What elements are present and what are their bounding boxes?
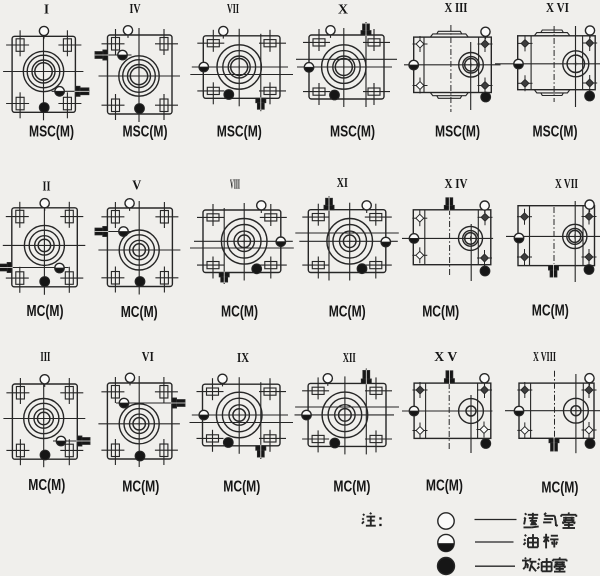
svg-text:X: X xyxy=(338,3,348,18)
svg-text:MC(M): MC(M) xyxy=(422,304,459,321)
svg-text:MC(M): MC(M) xyxy=(221,304,258,321)
svg-text:IX: IX xyxy=(237,351,249,366)
svg-text:VI: VI xyxy=(142,350,154,365)
svg-text:III: III xyxy=(40,350,50,365)
svg-text:MC(M): MC(M) xyxy=(122,479,159,496)
svg-text:MC(M): MC(M) xyxy=(28,477,65,494)
svg-text:V: V xyxy=(132,179,141,194)
svg-text:MSC(M): MSC(M) xyxy=(29,124,74,141)
svg-text:VII: VII xyxy=(227,2,239,17)
svg-text:MSC(M): MSC(M) xyxy=(435,124,480,141)
svg-text:MC(M): MC(M) xyxy=(541,480,578,497)
svg-text:I: I xyxy=(44,3,49,18)
svg-text:MC(M): MC(M) xyxy=(333,479,370,496)
svg-text:X IV: X IV xyxy=(445,177,468,192)
svg-text:XI: XI xyxy=(337,176,348,191)
svg-text:II: II xyxy=(43,180,51,195)
svg-text:X VI: X VI xyxy=(546,1,569,16)
svg-text:MC(M): MC(M) xyxy=(329,304,366,321)
svg-text:IV: IV xyxy=(130,2,141,17)
svg-text:XII: XII xyxy=(343,351,356,366)
svg-text:MSC(M): MSC(M) xyxy=(217,124,262,141)
svg-text:MSC(M): MSC(M) xyxy=(123,124,168,141)
svg-text:MC(M): MC(M) xyxy=(27,303,64,320)
svg-text:X VIII: X VIII xyxy=(533,350,556,365)
svg-text:MSC(M): MSC(M) xyxy=(330,124,375,141)
svg-text:X VII: X VII xyxy=(555,177,578,192)
svg-text:VIII: VIII xyxy=(230,178,240,193)
svg-text:MC(M): MC(M) xyxy=(426,478,463,495)
svg-text:X V: X V xyxy=(434,350,457,365)
svg-text:MC(M): MC(M) xyxy=(121,304,158,321)
svg-text:MC(M): MC(M) xyxy=(223,479,260,496)
svg-text:MSC(M): MSC(M) xyxy=(533,124,578,141)
svg-text:X III: X III xyxy=(445,1,468,16)
svg-text:MC(M): MC(M) xyxy=(532,303,569,320)
